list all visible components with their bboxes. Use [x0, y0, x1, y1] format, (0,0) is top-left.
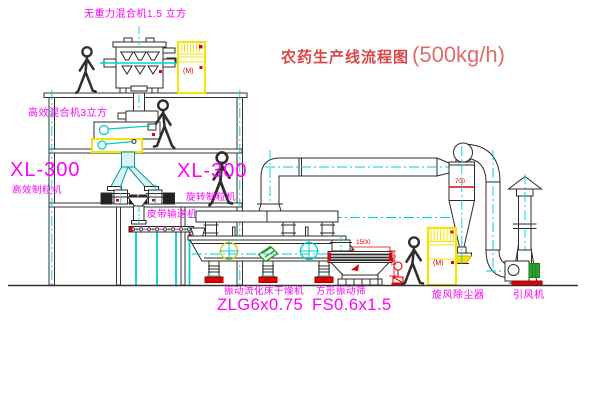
worker-second-floor [154, 101, 174, 149]
worker-ground [403, 237, 423, 285]
dim-sieve-width: 1500 [356, 240, 370, 247]
y-chute [108, 152, 159, 191]
label-granulator-left-name: 高效制粒机 [12, 186, 62, 196]
dim-sieve-height: 541 [389, 255, 396, 266]
title-chinese: 农药生产线流程图 [281, 49, 409, 66]
control-cabinet-lower [428, 228, 456, 285]
dim-cyclone-marking: 700 [455, 179, 465, 185]
cabinet2-mark: (M) [433, 260, 444, 267]
title-capacity: (500kg/h) [412, 42, 505, 67]
exhaust-duct [257, 150, 452, 212]
page-title: 农药生产线流程图(500kg/h) [281, 42, 505, 68]
zero-gravity-mixer [100, 26, 178, 111]
label-cyclone: 旋风除尘器 [432, 291, 485, 301]
label-granulator-right-name: 旋转制粒机 [186, 193, 236, 203]
cad-flow-diagram: 农药生产线流程图(500kg/h) 无重力混合机1.5 立方 高效混合机3立方 … [0, 0, 600, 403]
label-belt-conveyor: 皮带输送机 [147, 210, 197, 220]
label-fan: 引风机 [513, 291, 545, 301]
granulator-discharge-duct [128, 197, 149, 226]
label-sieve-model: FS0.6x1.5 [312, 297, 392, 314]
label-granulator-right-model: XL-300 [177, 161, 248, 181]
belt-conveyor [129, 227, 203, 286]
label-dryer-model: ZLG6x0.75 [217, 297, 303, 314]
label-mixer-top: 无重力混合机1.5 立方 [84, 10, 187, 20]
label-mixer-2f: 高效混合机3立方 [28, 109, 108, 119]
label-granulator-left-model: XL-300 [10, 160, 81, 180]
fluid-bed-dryer [188, 204, 354, 283]
cabinet1-mark: (M) [183, 68, 194, 75]
worker-top-floor [76, 47, 95, 93]
